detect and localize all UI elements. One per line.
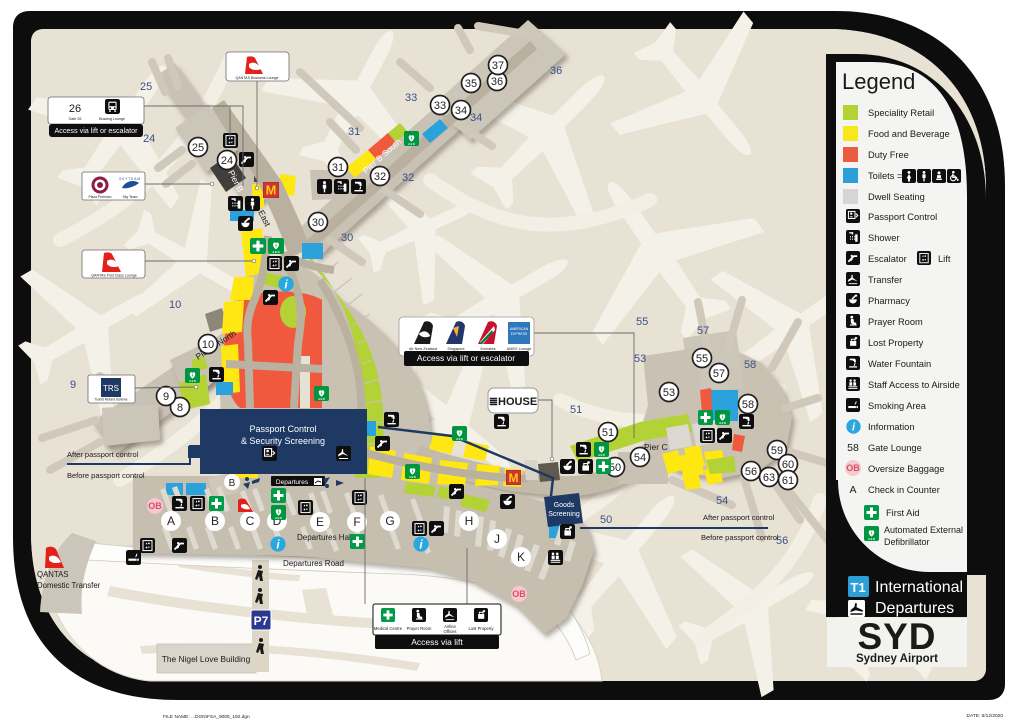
svg-text:FILE NAME: ...DGN\FSA_9005_19: FILE NAME: ...DGN\FSA_9005_192.dgn	[163, 714, 250, 720]
svg-text:G: G	[385, 514, 394, 528]
svg-text:Goods: Goods	[554, 502, 575, 509]
svg-text:53: 53	[634, 353, 646, 365]
svg-text:A: A	[849, 484, 856, 496]
svg-text:Defibrillator: Defibrillator	[884, 537, 930, 547]
svg-text:Tourist Refund Scheme: Tourist Refund Scheme	[94, 398, 127, 402]
svg-text:Prayer Room: Prayer Room	[868, 317, 923, 327]
svg-text:10: 10	[169, 299, 181, 311]
svg-text:OB: OB	[512, 589, 526, 599]
svg-text:24: 24	[221, 155, 233, 167]
svg-text:Air New Zealand: Air New Zealand	[409, 347, 437, 351]
svg-text:AMERICAN: AMERICAN	[510, 327, 529, 331]
svg-text:25: 25	[140, 81, 152, 93]
svg-text:Pharmacy: Pharmacy	[868, 296, 910, 306]
svg-text:Duty Free: Duty Free	[868, 150, 909, 160]
svg-text:Sydney Airport: Sydney Airport	[856, 653, 938, 665]
svg-text:57: 57	[697, 325, 709, 337]
svg-text:Departures: Departures	[875, 600, 954, 617]
svg-text:AMEX Lounge: AMEX Lounge	[507, 347, 532, 351]
svg-text:61: 61	[782, 475, 794, 487]
svg-text:C: C	[246, 514, 255, 528]
svg-text:53: 53	[663, 387, 675, 399]
svg-text:Lost Property: Lost Property	[469, 626, 495, 631]
svg-text:56: 56	[776, 535, 788, 547]
svg-text:EXPRESS: EXPRESS	[511, 332, 528, 336]
svg-text:31: 31	[332, 162, 344, 174]
svg-text:Departures: Departures	[276, 479, 309, 486]
svg-text:P7: P7	[254, 614, 269, 628]
svg-text:After passport control: After passport control	[67, 450, 139, 459]
svg-text:Speciality Retail: Speciality Retail	[868, 108, 934, 118]
svg-text:J: J	[494, 532, 500, 546]
svg-text:63: 63	[763, 472, 775, 484]
svg-text:35: 35	[465, 78, 477, 90]
svg-text:OB: OB	[846, 463, 860, 473]
svg-text:32: 32	[374, 171, 386, 183]
svg-text:OB: OB	[148, 501, 162, 511]
svg-text:Lost Property: Lost Property	[868, 338, 924, 348]
svg-text:Dwell Seating: Dwell Seating	[868, 192, 925, 202]
svg-text:34: 34	[470, 112, 482, 124]
svg-text:DATE: 6/12/2020: DATE: 6/12/2020	[967, 713, 1004, 719]
svg-text:Oversize Baggage: Oversize Baggage	[868, 464, 945, 474]
svg-text:SYD: SYD	[857, 616, 936, 657]
svg-text:9: 9	[163, 391, 169, 403]
svg-text:QANTAS: QANTAS	[37, 570, 68, 579]
svg-text:TRS: TRS	[103, 384, 119, 393]
svg-text:Food and Beverage: Food and Beverage	[868, 129, 950, 139]
svg-text:Lift: Lift	[938, 254, 951, 264]
svg-text:Shower: Shower	[868, 233, 900, 243]
svg-text:Water Fountain: Water Fountain	[868, 359, 931, 369]
svg-text:55: 55	[636, 316, 648, 328]
svg-text:Access via lift or escalator: Access via lift or escalator	[54, 126, 138, 135]
svg-text:F: F	[353, 515, 360, 529]
svg-text:After passport control: After passport control	[703, 513, 775, 522]
svg-text:B: B	[229, 478, 236, 489]
svg-text:Automated External: Automated External	[884, 525, 963, 535]
svg-text:58: 58	[847, 442, 859, 454]
svg-text:59: 59	[771, 445, 783, 457]
svg-text:SKYTEAM: SKYTEAM	[119, 177, 141, 181]
svg-text:Gate 26: Gate 26	[69, 117, 82, 121]
svg-text:54: 54	[716, 495, 728, 507]
svg-text:55: 55	[696, 353, 708, 365]
svg-text:Before passport control: Before passport control	[701, 533, 779, 542]
svg-text:& Security Screening: & Security Screening	[241, 436, 325, 446]
svg-text:56: 56	[745, 466, 757, 478]
svg-text:Passport Control: Passport Control	[249, 424, 316, 434]
svg-text:Departures Hall: Departures Hall	[297, 533, 353, 542]
svg-text:36: 36	[550, 65, 562, 77]
svg-text:50: 50	[600, 514, 612, 526]
svg-text:Escalator: Escalator	[868, 254, 907, 264]
svg-text:Access via lift: Access via lift	[411, 637, 463, 647]
svg-text:H: H	[465, 514, 474, 528]
svg-text:57: 57	[713, 368, 725, 380]
svg-text:First Aid: First Aid	[886, 508, 920, 518]
svg-text:Emirates: Emirates	[481, 347, 496, 351]
svg-text:Staff Access to Airside: Staff Access to Airside	[868, 380, 960, 390]
svg-text:≣HOUSE: ≣HOUSE	[489, 396, 537, 408]
svg-text:A: A	[167, 514, 175, 528]
svg-text:Offices: Offices	[444, 629, 457, 634]
svg-text:58: 58	[742, 399, 754, 411]
svg-text:33: 33	[434, 100, 446, 112]
svg-text:10: 10	[202, 339, 214, 351]
svg-text:International: International	[875, 579, 963, 596]
svg-text:51: 51	[570, 404, 582, 416]
svg-text:9: 9	[70, 379, 76, 391]
svg-text:8: 8	[177, 402, 183, 414]
svg-text:24: 24	[143, 133, 155, 145]
svg-text:B: B	[211, 514, 219, 528]
svg-text:33: 33	[405, 92, 417, 104]
svg-text:Smoking Area: Smoking Area	[868, 401, 927, 411]
svg-text:Departures Road: Departures Road	[283, 559, 344, 568]
svg-text:36: 36	[491, 76, 503, 88]
svg-text:30: 30	[341, 232, 353, 244]
svg-text:54: 54	[634, 452, 646, 464]
svg-text:K: K	[517, 550, 525, 564]
svg-text:The Nigel Love Building: The Nigel Love Building	[162, 654, 251, 664]
svg-text:37: 37	[492, 60, 504, 72]
svg-text:T1: T1	[850, 580, 865, 595]
svg-text:Passport Control: Passport Control	[868, 212, 937, 222]
svg-text:31: 31	[348, 126, 360, 138]
svg-text:Bussing Lounge: Bussing Lounge	[99, 117, 125, 121]
svg-text:30: 30	[312, 217, 324, 229]
svg-text:51: 51	[602, 427, 614, 439]
svg-text:QANTAS First Class Lounge: QANTAS First Class Lounge	[91, 274, 136, 278]
svg-text:Medical Centre: Medical Centre	[374, 626, 403, 631]
svg-text:58: 58	[744, 359, 756, 371]
svg-text:32: 32	[402, 172, 414, 184]
svg-text:Domestic Transfer: Domestic Transfer	[37, 581, 101, 590]
svg-text:Screening: Screening	[548, 511, 580, 518]
svg-text:QANTAS Business Lounge: QANTAS Business Lounge	[235, 76, 278, 80]
svg-text:26: 26	[69, 103, 81, 115]
svg-text:Before passport control: Before passport control	[67, 471, 145, 480]
svg-text:34: 34	[455, 105, 467, 117]
svg-text:Gate Lounge: Gate Lounge	[868, 443, 922, 453]
svg-text:Plaza Premium: Plaza Premium	[89, 195, 112, 199]
svg-text:Legend: Legend	[842, 69, 915, 94]
svg-text:25: 25	[192, 142, 204, 154]
svg-text:Toilets =: Toilets =	[868, 171, 902, 181]
svg-text:Transfer: Transfer	[868, 275, 902, 285]
svg-text:E: E	[316, 515, 324, 529]
svg-text:Sky Team: Sky Team	[123, 195, 138, 199]
svg-text:Check in Counter: Check in Counter	[868, 485, 940, 495]
svg-text:Prayer Room: Prayer Room	[407, 626, 432, 631]
svg-text:Access via lift or escalator: Access via lift or escalator	[417, 353, 515, 363]
svg-text:60: 60	[782, 459, 794, 471]
svg-text:Information: Information	[868, 422, 915, 432]
